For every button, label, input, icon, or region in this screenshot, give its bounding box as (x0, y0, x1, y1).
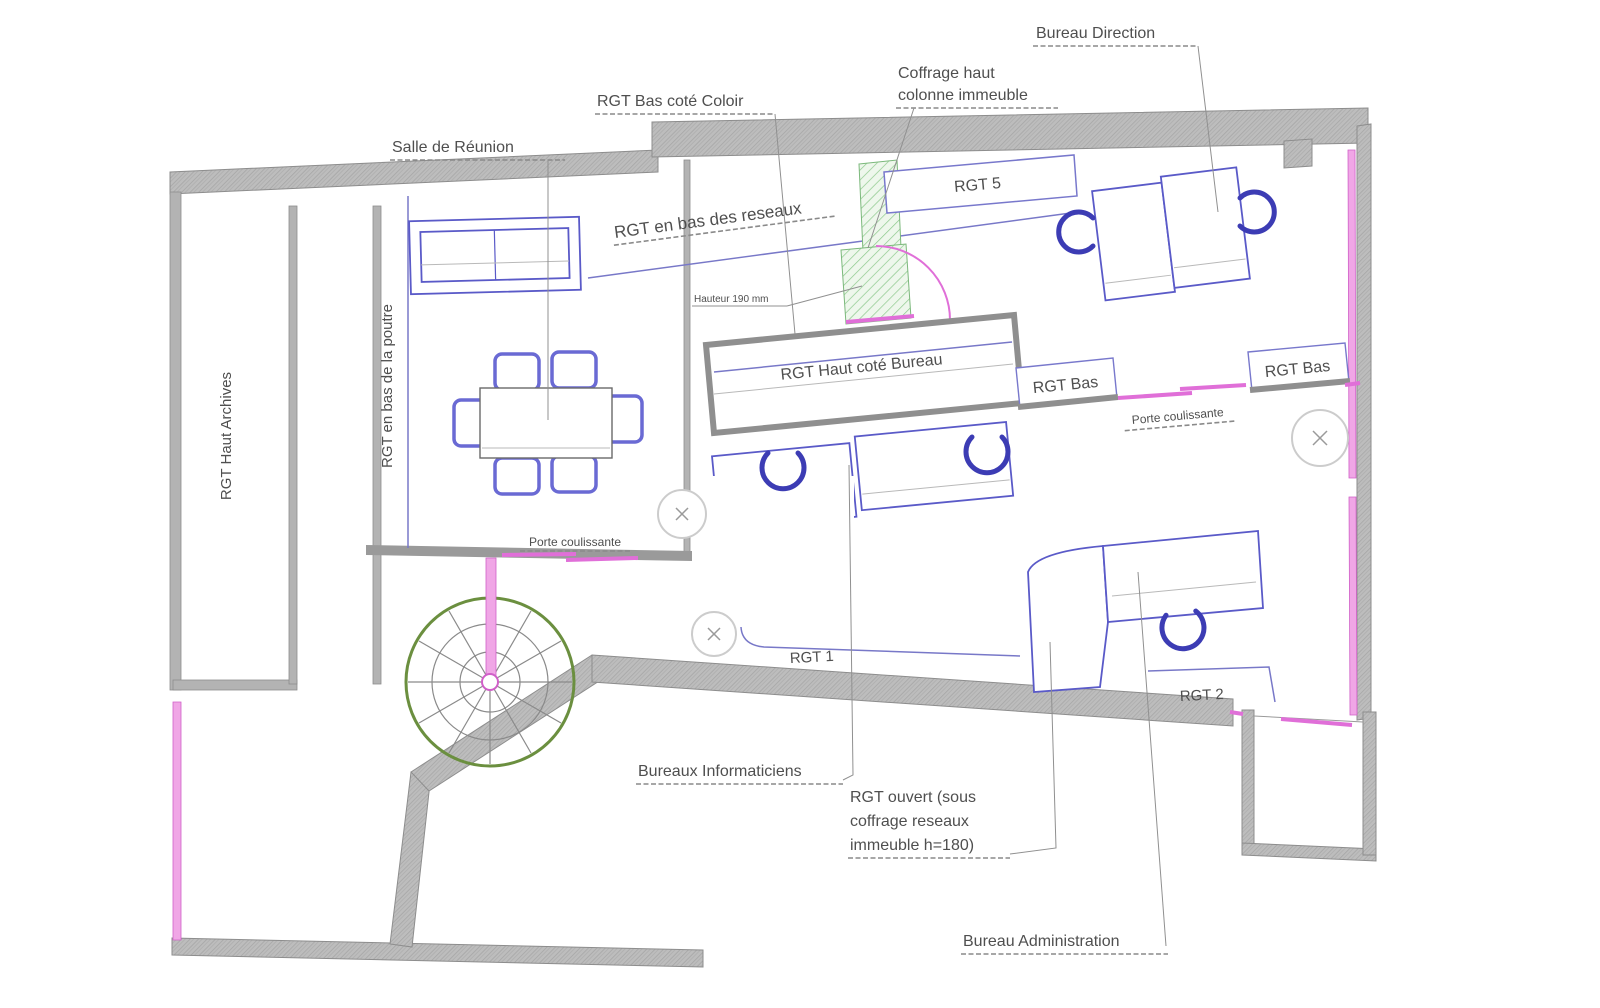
column-hatch-lower (841, 244, 911, 324)
label-rgt1: RGT 1 (789, 648, 834, 667)
wall-right (1357, 124, 1371, 720)
spiral-staircase (406, 558, 574, 766)
wall-vertical-lower (390, 772, 431, 947)
label-coffrage-1: Coffrage haut (898, 65, 995, 82)
wall-archives-bottom (173, 680, 297, 690)
wall-top-notch (1284, 139, 1312, 168)
label-porte-coulissante-bottom: Porte coulissante (529, 535, 621, 549)
window-right-upper (1348, 150, 1356, 478)
white-patch (710, 476, 854, 608)
window-left (173, 702, 181, 940)
informaticiens-desks (658, 422, 1014, 608)
rgt1-tray-line (741, 627, 1020, 656)
sliding-door-meeting-leaf2 (566, 558, 638, 560)
wall-top-right (652, 108, 1368, 157)
wall-diagonal-stair (411, 655, 610, 791)
label-rgt-ouvert-1: RGT ouvert (sous (850, 789, 976, 806)
wall-balcony-right (1363, 712, 1376, 855)
chair (552, 352, 596, 388)
floor-plan-page: RGT 5 RGT Haut coté Bureau RGT Bas Porte… (0, 0, 1600, 1008)
wall-bottom-left (172, 938, 703, 967)
window-right-lower (1349, 497, 1357, 715)
rgt-bas-right-box: RGT Bas (1248, 343, 1360, 391)
sliding-door-meeting (502, 554, 576, 555)
label-salle-reunion: Salle de Réunion (392, 139, 514, 156)
coffrage-band: RGT Haut coté Bureau (706, 315, 1022, 433)
stair-center-post (482, 674, 498, 690)
label-hauteur: Hauteur 190 mm (694, 294, 768, 305)
wall-balcony-left (1242, 710, 1254, 855)
label-rgt-en-bas-reseaux: RGT en bas des reseaux (613, 198, 803, 242)
label-rgt-en-bas-poutre: RGT en bas de la poutre (379, 304, 396, 468)
label-coffrage-2: colonne immeuble (898, 87, 1028, 104)
meeting-sofa (409, 217, 581, 294)
chair (495, 354, 539, 390)
floor-plan-drawing: RGT 5 RGT Haut coté Bureau RGT Bas Porte… (0, 0, 1600, 1008)
rgt-bas-left-box: RGT Bas (1016, 358, 1118, 408)
wall-left (170, 192, 181, 690)
chair (1160, 610, 1207, 651)
label-bureau-direction: Bureau Direction (1036, 25, 1155, 42)
label-rgt2: RGT 2 (1179, 686, 1224, 705)
wall-south (592, 655, 1233, 726)
rgt5-cabinet: RGT 5 (884, 155, 1077, 213)
chair (1059, 212, 1093, 252)
wall-balcony-bottom (1242, 843, 1376, 861)
chair (495, 458, 539, 494)
chair (1240, 192, 1274, 232)
direction-desks (1059, 167, 1275, 300)
wall-top-left (170, 150, 658, 194)
chair (552, 456, 596, 492)
label-bureaux-informaticiens: Bureaux Informaticiens (638, 763, 802, 780)
label-rgt-ouvert-3: immeuble h=180) (850, 837, 974, 854)
label-rgt-haut-archives: RGT Haut Archives (218, 372, 235, 500)
window-south-join (1230, 712, 1243, 714)
label-rgt-bas-coloir: RGT Bas coté Coloir (597, 93, 744, 110)
wall-archives-inner-1 (289, 206, 297, 684)
label-bureau-administration: Bureau Administration (963, 933, 1120, 950)
stair-partition (486, 558, 496, 682)
sliding-door-right: Porte coulissante (1118, 385, 1246, 431)
label-rgt-ouvert-2: coffrage reseaux (850, 813, 969, 830)
